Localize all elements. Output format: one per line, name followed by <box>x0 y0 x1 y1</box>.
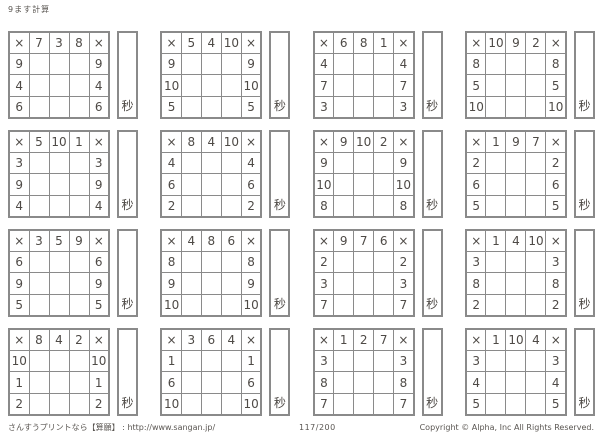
right-value-cell: 7 <box>394 393 414 415</box>
value-row: 1010 <box>161 294 261 316</box>
top-value-cell: 8 <box>354 32 374 54</box>
answer-cell <box>506 294 526 316</box>
seconds-label: 秒 <box>121 196 133 216</box>
value-row: 33 <box>466 351 566 372</box>
answer-cell <box>29 351 49 372</box>
value-row: 88 <box>466 273 566 294</box>
right-value-cell: 10 <box>394 174 414 195</box>
right-value-cell: 10 <box>89 351 109 372</box>
left-value-cell: 8 <box>314 195 334 217</box>
answer-cell <box>486 174 506 195</box>
multiplication-grid-block: ×976×223377 秒 <box>313 229 443 317</box>
operator-cell: × <box>89 131 109 153</box>
left-value-cell: 6 <box>161 174 181 195</box>
value-row: 55 <box>161 96 261 118</box>
answer-cell <box>221 393 241 415</box>
top-value-cell: 5 <box>49 230 69 252</box>
operator-cell: × <box>546 32 566 54</box>
top-value-cell: 2 <box>374 131 394 153</box>
right-value-cell: 6 <box>241 174 261 195</box>
value-row: 66 <box>9 252 109 273</box>
multiplication-grid-block: ×5410×99101055 秒 <box>160 31 290 119</box>
value-row: 1010 <box>9 351 109 372</box>
multiplication-grid: ×738×994466 <box>8 31 110 119</box>
left-value-cell: 1 <box>9 372 29 393</box>
seconds-box: 秒 <box>269 328 290 416</box>
right-value-cell: 5 <box>546 393 566 415</box>
value-row: 44 <box>161 153 261 174</box>
value-row: 22 <box>466 153 566 174</box>
answer-cell <box>29 75 49 96</box>
top-value-cell: 8 <box>29 329 49 351</box>
operator-cell: × <box>394 230 414 252</box>
multiplication-grid: ×5101×339944 <box>8 130 110 218</box>
seconds-box: 秒 <box>117 229 138 317</box>
left-value-cell: 7 <box>314 393 334 415</box>
header-row: ×486× <box>161 230 261 252</box>
top-value-cell: 6 <box>334 32 354 54</box>
right-value-cell: 3 <box>546 351 566 372</box>
answer-cell <box>201 294 221 316</box>
operator-cell: × <box>546 329 566 351</box>
operator-cell: × <box>89 230 109 252</box>
answer-cell <box>49 153 69 174</box>
answer-cell <box>201 351 221 372</box>
header-row: ×1092× <box>466 32 566 54</box>
left-value-cell: 6 <box>161 372 181 393</box>
answer-cell <box>374 372 394 393</box>
value-row: 99 <box>9 273 109 294</box>
value-row: 88 <box>161 252 261 273</box>
answer-cell <box>506 393 526 415</box>
answer-cell <box>69 252 89 273</box>
value-row: 1010 <box>161 75 261 96</box>
left-value-cell: 1 <box>161 351 181 372</box>
answer-cell <box>526 351 546 372</box>
left-value-cell: 3 <box>466 351 486 372</box>
answer-cell <box>221 252 241 273</box>
left-value-cell: 5 <box>466 393 486 415</box>
answer-cell <box>374 393 394 415</box>
footer-page-number: 117/200 <box>299 423 336 432</box>
left-value-cell: 2 <box>161 195 181 217</box>
right-value-cell: 3 <box>394 96 414 118</box>
answer-cell <box>201 153 221 174</box>
top-value-cell: 7 <box>526 131 546 153</box>
operator-cell: × <box>9 329 29 351</box>
answer-cell <box>526 372 546 393</box>
top-value-cell: 1 <box>486 329 506 351</box>
value-row: 77 <box>314 75 414 96</box>
top-value-cell: 8 <box>201 230 221 252</box>
operator-cell: × <box>161 230 181 252</box>
left-value-cell: 2 <box>9 393 29 415</box>
footer-site-text: さんすうプリントなら【算願】 : http://www.sangan.jp/ <box>8 422 215 433</box>
seconds-label: 秒 <box>426 394 438 414</box>
multiplication-grid-block: ×842×10101122 秒 <box>8 328 138 416</box>
left-value-cell: 10 <box>161 294 181 316</box>
right-value-cell: 3 <box>89 153 109 174</box>
multiplication-grid-block: ×197×226655 秒 <box>465 130 595 218</box>
multiplication-grid-block: ×1092×88551010 秒 <box>465 31 595 119</box>
answer-cell <box>354 351 374 372</box>
answer-cell <box>526 393 546 415</box>
operator-cell: × <box>394 329 414 351</box>
answer-cell <box>49 174 69 195</box>
right-value-cell: 4 <box>89 75 109 96</box>
left-value-cell: 9 <box>314 153 334 174</box>
operator-cell: × <box>314 329 334 351</box>
seconds-box: 秒 <box>574 130 595 218</box>
answer-cell <box>221 294 241 316</box>
right-value-cell: 6 <box>89 96 109 118</box>
operator-cell: × <box>314 32 334 54</box>
answer-cell <box>354 54 374 75</box>
operator-cell: × <box>466 329 486 351</box>
top-value-cell: 8 <box>69 32 89 54</box>
multiplication-grid-block: ×127×338877 秒 <box>313 328 443 416</box>
right-value-cell: 1 <box>241 351 261 372</box>
answer-cell <box>221 96 241 118</box>
value-row: 44 <box>9 195 109 217</box>
answer-cell <box>486 153 506 174</box>
answer-cell <box>69 96 89 118</box>
operator-cell: × <box>89 329 109 351</box>
top-value-cell: 1 <box>486 230 506 252</box>
top-value-cell: 6 <box>374 230 394 252</box>
multiplication-grid: ×359×669955 <box>8 229 110 317</box>
value-row: 99 <box>314 153 414 174</box>
answer-cell <box>374 351 394 372</box>
answer-cell <box>49 294 69 316</box>
right-value-cell: 9 <box>241 273 261 294</box>
answer-cell <box>69 174 89 195</box>
answer-cell <box>486 372 506 393</box>
answer-cell <box>374 273 394 294</box>
left-value-cell: 3 <box>9 153 29 174</box>
right-value-cell: 1 <box>89 372 109 393</box>
answer-cell <box>334 273 354 294</box>
right-value-cell: 5 <box>89 294 109 316</box>
answer-cell <box>506 96 526 118</box>
multiplication-grid-block: ×1410×338822 秒 <box>465 229 595 317</box>
answer-cell <box>201 195 221 217</box>
left-value-cell: 2 <box>466 153 486 174</box>
answer-cell <box>354 96 374 118</box>
answer-cell <box>69 75 89 96</box>
right-value-cell: 10 <box>241 393 261 415</box>
answer-cell <box>69 273 89 294</box>
left-value-cell: 5 <box>466 75 486 96</box>
top-value-cell: 5 <box>29 131 49 153</box>
answer-cell <box>69 393 89 415</box>
operator-cell: × <box>241 329 261 351</box>
answer-cell <box>506 75 526 96</box>
answer-cell <box>221 153 241 174</box>
left-value-cell: 2 <box>466 294 486 316</box>
top-value-cell: 9 <box>334 131 354 153</box>
value-row: 88 <box>466 54 566 75</box>
top-value-cell: 1 <box>374 32 394 54</box>
multiplication-grid-block: ×486×88991010 秒 <box>160 229 290 317</box>
answer-cell <box>506 54 526 75</box>
answer-cell <box>181 351 201 372</box>
answer-cell <box>354 273 374 294</box>
header-row: ×5101× <box>9 131 109 153</box>
right-value-cell: 10 <box>241 294 261 316</box>
answer-cell <box>29 372 49 393</box>
answer-cell <box>69 294 89 316</box>
answer-cell <box>354 174 374 195</box>
answer-cell <box>29 96 49 118</box>
right-value-cell: 10 <box>546 96 566 118</box>
top-value-cell: 4 <box>221 329 241 351</box>
answer-cell <box>221 54 241 75</box>
left-value-cell: 7 <box>314 75 334 96</box>
top-value-cell: 10 <box>354 131 374 153</box>
answer-cell <box>221 174 241 195</box>
answer-cell <box>221 351 241 372</box>
answer-cell <box>486 393 506 415</box>
answer-cell <box>181 153 201 174</box>
answer-cell <box>526 195 546 217</box>
answer-cell <box>334 252 354 273</box>
answer-cell <box>181 252 201 273</box>
header-row: ×197× <box>466 131 566 153</box>
top-value-cell: 9 <box>334 230 354 252</box>
right-value-cell: 2 <box>241 195 261 217</box>
top-value-cell: 4 <box>506 230 526 252</box>
right-value-cell: 9 <box>89 174 109 195</box>
operator-cell: × <box>314 230 334 252</box>
value-row: 33 <box>314 96 414 118</box>
answer-cell <box>29 195 49 217</box>
page-title: 9ます計算 <box>8 4 50 15</box>
operator-cell: × <box>161 32 181 54</box>
value-row: 1010 <box>314 174 414 195</box>
answer-cell <box>374 96 394 118</box>
answer-cell <box>486 351 506 372</box>
value-row: 77 <box>314 294 414 316</box>
seconds-label: 秒 <box>274 196 286 216</box>
answer-cell <box>506 273 526 294</box>
header-row: ×976× <box>314 230 414 252</box>
answer-cell <box>486 252 506 273</box>
answer-cell <box>486 54 506 75</box>
seconds-box: 秒 <box>422 229 443 317</box>
right-value-cell: 10 <box>241 75 261 96</box>
answer-cell <box>486 75 506 96</box>
left-value-cell: 8 <box>466 273 486 294</box>
right-value-cell: 4 <box>89 195 109 217</box>
answer-cell <box>29 153 49 174</box>
top-value-cell: 4 <box>49 329 69 351</box>
answer-cell <box>29 54 49 75</box>
top-value-cell: 10 <box>526 230 546 252</box>
value-row: 22 <box>314 252 414 273</box>
answer-cell <box>506 195 526 217</box>
value-row: 88 <box>314 195 414 217</box>
left-value-cell: 10 <box>161 75 181 96</box>
operator-cell: × <box>9 32 29 54</box>
answer-cell <box>49 351 69 372</box>
top-value-cell: 10 <box>221 131 241 153</box>
seconds-box: 秒 <box>422 328 443 416</box>
multiplication-grid-block: ×364×11661010 秒 <box>160 328 290 416</box>
top-value-cell: 3 <box>181 329 201 351</box>
value-row: 33 <box>9 153 109 174</box>
left-value-cell: 9 <box>9 273 29 294</box>
answer-cell <box>354 393 374 415</box>
answer-cell <box>201 372 221 393</box>
answer-cell <box>29 174 49 195</box>
answer-cell <box>486 195 506 217</box>
answer-cell <box>506 153 526 174</box>
seconds-box: 秒 <box>574 229 595 317</box>
value-row: 88 <box>314 372 414 393</box>
value-row: 99 <box>9 54 109 75</box>
value-row: 22 <box>466 294 566 316</box>
right-value-cell: 9 <box>394 153 414 174</box>
multiplication-grid: ×1092×88551010 <box>465 31 567 119</box>
answer-cell <box>374 252 394 273</box>
header-row: ×1104× <box>466 329 566 351</box>
operator-cell: × <box>89 32 109 54</box>
answer-cell <box>181 75 201 96</box>
answer-cell <box>29 393 49 415</box>
answer-cell <box>334 393 354 415</box>
answer-cell <box>506 351 526 372</box>
top-value-cell: 4 <box>181 230 201 252</box>
answer-cell <box>221 372 241 393</box>
seconds-box: 秒 <box>269 130 290 218</box>
multiplication-grid-block: ×359×669955 秒 <box>8 229 138 317</box>
left-value-cell: 10 <box>466 96 486 118</box>
seconds-label: 秒 <box>274 97 286 117</box>
answer-cell <box>374 153 394 174</box>
right-value-cell: 7 <box>394 75 414 96</box>
right-value-cell: 9 <box>241 54 261 75</box>
answer-cell <box>526 54 546 75</box>
answer-cell <box>49 273 69 294</box>
multiplication-grid: ×5410×99101055 <box>160 31 262 119</box>
value-row: 11 <box>9 372 109 393</box>
answer-cell <box>374 174 394 195</box>
left-value-cell: 6 <box>9 252 29 273</box>
answer-cell <box>506 372 526 393</box>
seconds-box: 秒 <box>574 31 595 119</box>
right-value-cell: 2 <box>546 153 566 174</box>
grid-area: ×738×994466 秒 ×5410×99101055 秒 ×681×4477… <box>8 31 595 416</box>
right-value-cell: 9 <box>89 54 109 75</box>
answer-cell <box>181 96 201 118</box>
seconds-label: 秒 <box>274 394 286 414</box>
top-value-cell: 8 <box>181 131 201 153</box>
operator-cell: × <box>241 131 261 153</box>
value-row: 99 <box>161 273 261 294</box>
multiplication-grid: ×364×11661010 <box>160 328 262 416</box>
right-value-cell: 5 <box>546 195 566 217</box>
answer-cell <box>49 252 69 273</box>
multiplication-grid: ×9102×99101088 <box>313 130 415 218</box>
left-value-cell: 3 <box>466 252 486 273</box>
answer-cell <box>69 195 89 217</box>
value-row: 11 <box>161 351 261 372</box>
answer-cell <box>486 96 506 118</box>
right-value-cell: 3 <box>394 273 414 294</box>
answer-cell <box>69 153 89 174</box>
top-value-cell: 1 <box>334 329 354 351</box>
seconds-label: 秒 <box>578 394 590 414</box>
seconds-label: 秒 <box>578 295 590 315</box>
operator-cell: × <box>161 131 181 153</box>
left-value-cell: 3 <box>314 351 334 372</box>
right-value-cell: 5 <box>241 96 261 118</box>
value-row: 77 <box>314 393 414 415</box>
left-value-cell: 9 <box>161 54 181 75</box>
right-value-cell: 7 <box>394 294 414 316</box>
left-value-cell: 5 <box>161 96 181 118</box>
operator-cell: × <box>466 230 486 252</box>
answer-cell <box>354 75 374 96</box>
top-value-cell: 6 <box>201 329 221 351</box>
value-row: 33 <box>466 252 566 273</box>
left-value-cell: 10 <box>9 351 29 372</box>
value-row: 55 <box>466 195 566 217</box>
top-value-cell: 4 <box>526 329 546 351</box>
value-row: 66 <box>161 174 261 195</box>
answer-cell <box>526 75 546 96</box>
top-value-cell: 4 <box>201 131 221 153</box>
multiplication-grid: ×197×226655 <box>465 130 567 218</box>
answer-cell <box>29 252 49 273</box>
answer-cell <box>354 372 374 393</box>
answer-cell <box>526 174 546 195</box>
answer-cell <box>49 195 69 217</box>
answer-cell <box>69 54 89 75</box>
answer-cell <box>334 195 354 217</box>
answer-cell <box>334 96 354 118</box>
seconds-box: 秒 <box>117 328 138 416</box>
answer-cell <box>486 294 506 316</box>
answer-cell <box>526 153 546 174</box>
answer-cell <box>49 96 69 118</box>
answer-cell <box>354 195 374 217</box>
answer-cell <box>181 195 201 217</box>
seconds-label: 秒 <box>121 394 133 414</box>
seconds-label: 秒 <box>578 97 590 117</box>
top-value-cell: 2 <box>526 32 546 54</box>
multiplication-grid-block: ×1104×334455 秒 <box>465 328 595 416</box>
answer-cell <box>49 393 69 415</box>
answer-cell <box>201 174 221 195</box>
top-value-cell: 7 <box>29 32 49 54</box>
answer-cell <box>29 273 49 294</box>
seconds-box: 秒 <box>117 31 138 119</box>
right-value-cell: 5 <box>546 75 566 96</box>
seconds-box: 秒 <box>269 229 290 317</box>
answer-cell <box>201 273 221 294</box>
top-value-cell: 1 <box>486 131 506 153</box>
operator-cell: × <box>241 230 261 252</box>
header-row: ×127× <box>314 329 414 351</box>
top-value-cell: 2 <box>69 329 89 351</box>
top-value-cell: 3 <box>29 230 49 252</box>
answer-cell <box>526 252 546 273</box>
answer-cell <box>221 75 241 96</box>
left-value-cell: 4 <box>161 153 181 174</box>
left-value-cell: 5 <box>466 195 486 217</box>
